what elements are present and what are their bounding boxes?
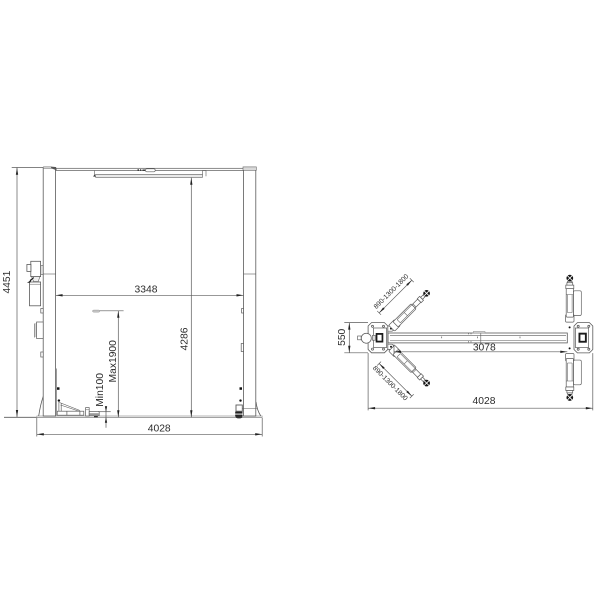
svg-text:Max1900: Max1900 bbox=[108, 340, 119, 383]
svg-text:3078: 3078 bbox=[473, 342, 496, 353]
svg-text:4028: 4028 bbox=[148, 423, 171, 434]
svg-text:3348: 3348 bbox=[135, 285, 158, 296]
svg-text:4286: 4286 bbox=[180, 327, 191, 350]
svg-text:4451: 4451 bbox=[2, 270, 13, 293]
svg-text:4028: 4028 bbox=[473, 396, 496, 407]
svg-text:550: 550 bbox=[337, 328, 348, 345]
svg-text:Min100: Min100 bbox=[95, 373, 106, 407]
